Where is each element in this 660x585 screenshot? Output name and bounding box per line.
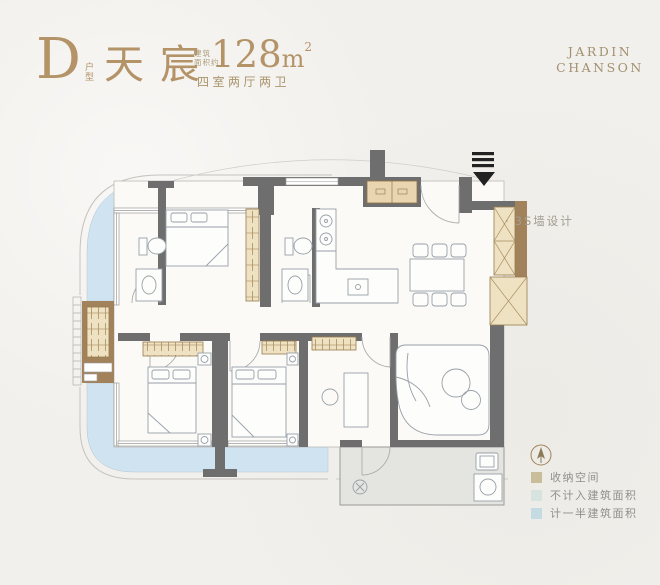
brand-line1: JARDIN	[552, 44, 648, 60]
kitchen-window	[286, 178, 338, 185]
living-room-sofa	[396, 345, 489, 435]
legend-item-storage: 收纳空间	[531, 468, 638, 486]
exterior-ladder	[73, 297, 81, 385]
area-value: 128m2	[211, 33, 312, 76]
bedroom-1-wardrobe	[246, 209, 259, 301]
unit-type-label: 户型	[82, 62, 95, 82]
legend-label-non-counted: 不计入建筑面积	[550, 487, 638, 503]
rooms-summary: 四室两厅两卫	[197, 73, 290, 90]
brand-logo: JARDIN CHANSON	[552, 44, 648, 76]
unit-letter: D	[36, 30, 81, 90]
area-superscript: 2	[304, 40, 312, 54]
legend-label-storage: 收纳空间	[550, 469, 600, 485]
entry-cabinet	[367, 181, 417, 203]
north-arrow-icon	[528, 442, 554, 468]
legend-chip-half-counted	[531, 508, 542, 519]
brand-line2: CHANSON	[552, 60, 648, 76]
area-number: 128	[211, 33, 282, 76]
floor-plan	[60, 145, 530, 535]
bathroom-1-fixtures	[136, 238, 166, 301]
bathroom-2-fixtures	[282, 238, 312, 301]
bedroom-1-bed	[166, 210, 228, 266]
legend-chip-non-counted	[531, 490, 542, 501]
legend-label-half-counted: 计一半建筑面积	[550, 505, 638, 521]
note-bullet: ·	[505, 214, 511, 228]
dining-set	[410, 244, 466, 306]
wall-design-note: ·3S墙设计	[505, 213, 574, 229]
storage-wall-left	[82, 301, 114, 383]
note-text: 3S墙设计	[515, 214, 574, 228]
legend-item-half-counted: 计一半建筑面积	[531, 504, 638, 522]
legend-chip-storage	[531, 472, 542, 483]
legend: 收纳空间 不计入建筑面积 计一半建筑面积	[531, 468, 638, 522]
legend-item-non-counted: 不计入建筑面积	[531, 486, 638, 504]
area-unit: m	[282, 45, 305, 73]
